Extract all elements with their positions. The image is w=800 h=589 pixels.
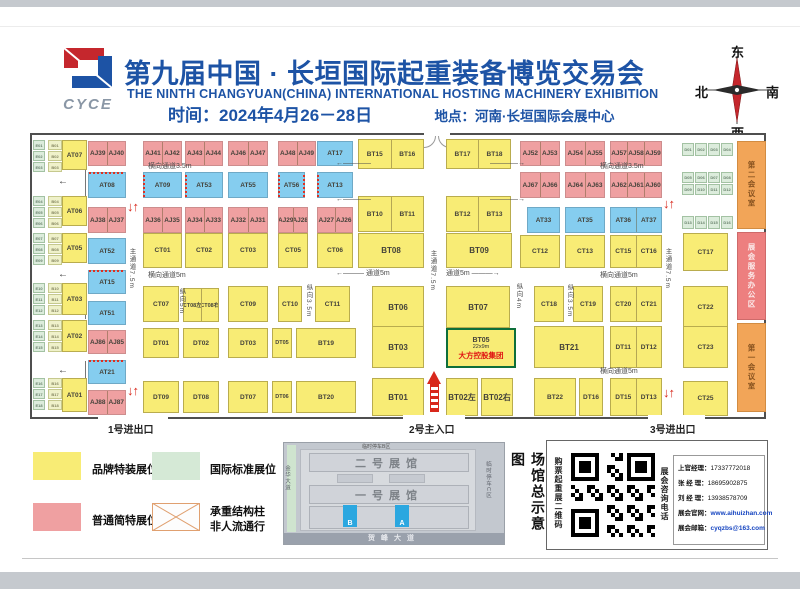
booth-cell: AT03 — [63, 284, 86, 314]
booth-cell: AT36 — [611, 208, 636, 232]
date-venue-line: 时间：2024年4月26－28日 地点：河南·长垣国际会展中心 — [168, 101, 688, 126]
contact-row: 刘 经 理：13938578709 — [678, 491, 761, 506]
cyce-logo: CYCE — [56, 44, 120, 116]
contact-box: 上官经理：17337772018张 经 理：18695902875刘 经 理：1… — [673, 455, 765, 545]
mini-booth: D15 — [708, 216, 720, 229]
booth-size-label: 22x9m — [473, 344, 490, 351]
booth-cell: CT10 — [279, 287, 301, 321]
booth-cell: AJ67 — [521, 173, 540, 197]
booth-cell: AJ59 — [644, 142, 661, 165]
link-corridor — [337, 474, 373, 483]
booth-DT03: DT03 — [228, 328, 268, 358]
booth-cell: BT11 — [391, 197, 424, 231]
booth-AT53: AT53 — [185, 172, 223, 198]
booth-cell: BT02左 — [447, 379, 477, 415]
booth-AT55: AT55 — [228, 172, 268, 198]
contact-link-value: cyqzbs@163.com — [711, 525, 765, 532]
booth-cell: BT22 — [535, 379, 575, 415]
mini-booth: E12 — [33, 305, 45, 315]
booth-cell: DT07 — [229, 382, 267, 412]
booth-cell: DT02 — [184, 329, 218, 357]
booth-BT06: BT06 — [372, 286, 424, 328]
booth-cell: AJ54 — [566, 142, 585, 165]
booth-cell: DT11 — [611, 327, 636, 367]
booth-cell: CT20 — [611, 287, 636, 321]
mini-booth: B04 — [48, 196, 62, 206]
gate-label-1: 1号进出口 — [108, 421, 154, 436]
legend-swatch-brand — [33, 452, 81, 480]
mini-booth: D16 — [721, 216, 733, 229]
booth-cell: DT15 — [611, 379, 636, 415]
booth-cell: AJ44 — [204, 142, 223, 165]
booth-cell: CT25 — [684, 382, 727, 415]
mini-booth: E07 — [33, 233, 45, 243]
booth-cell: CT15 — [611, 236, 636, 267]
two-way-arrow-icon: ↓↑ — [663, 196, 674, 211]
booth-cell: AJ61 — [627, 173, 644, 197]
legend-label-simple: 普通简特展位 — [92, 512, 158, 528]
mini-booth: D07 — [708, 172, 720, 183]
mini-booth: B10 — [48, 283, 62, 293]
booth-AT07: AT07 — [62, 140, 87, 170]
booth-cell: BT21 — [535, 327, 603, 367]
legend-label-pillar-1: 承重结构柱 — [210, 503, 265, 519]
booth-cell: CT09 — [229, 287, 267, 321]
mini-booth: B03 — [48, 162, 62, 172]
booth-cell: AJ49 — [297, 142, 316, 165]
entrance-hall-a: A — [395, 505, 409, 527]
booth-展会服务办公区: 展会服务办公区 — [737, 232, 766, 320]
special-booth-dash — [89, 360, 125, 362]
booth-CT19: CT19 — [573, 286, 603, 322]
booth-cell: AT51 — [89, 302, 125, 324]
booth-BT08: BT08 — [358, 233, 424, 268]
booth-cell: AJ32 — [229, 208, 248, 232]
booth-DT16: DT16 — [579, 378, 603, 416]
page-subtitle-english: THE NINTH CHANGYUAN(CHINA) INTERNATIONAL… — [127, 87, 658, 101]
booth-cell: CT03 — [229, 234, 267, 267]
booth-cell: AJ60 — [644, 173, 661, 197]
booth-DT08: DT08 — [183, 381, 219, 413]
booth-cell: AJ36 — [144, 208, 162, 232]
booth-DT05: DT05 — [272, 328, 292, 358]
booth-CT02: CT02 — [185, 233, 223, 268]
contact-phone-value: 13938578709 — [708, 495, 748, 502]
mini-booth: E17 — [33, 389, 45, 399]
booth-cell: CT06 — [318, 234, 352, 267]
booth-AT08: AT08 — [88, 172, 126, 198]
aisle-label: ←―――― — [336, 160, 371, 167]
booth-cell: AJ86 — [89, 331, 107, 353]
booth-AJ27: AJ27AJ26 — [317, 207, 353, 233]
booth-cell: AJ53 — [540, 142, 560, 165]
aisle-label: ←――― 通道5m — [336, 268, 390, 278]
booth-CT20: CT20CT21 — [610, 286, 662, 322]
booth-cell: AJ28 — [293, 208, 308, 232]
mini-booth: E15 — [33, 342, 45, 352]
mini-booth: E05 — [33, 207, 45, 217]
mini-booth: E10 — [33, 283, 45, 293]
booth-AJ52: AJ52AJ53 — [520, 141, 560, 166]
booth-cell: AJ35 — [162, 208, 181, 232]
booth-cell: AJ87 — [107, 391, 126, 414]
booth-AT15: AT15 — [88, 270, 126, 294]
booth-AT21: AT21 — [88, 360, 126, 384]
mini-booth: D06 — [695, 172, 707, 183]
contact-row: 展会邮箱：cyqzbs@163.com — [678, 521, 761, 536]
booth-cell: CT17 — [684, 234, 727, 270]
mini-booth: D09 — [682, 184, 694, 195]
aisle-label: 主通道7.5m — [427, 250, 437, 291]
booth-DT09: DT09 — [143, 381, 179, 413]
booth-cell: AT05 — [63, 234, 86, 262]
booth-CT22: CT22 — [683, 286, 728, 328]
mini-booth: D01 — [682, 143, 694, 156]
booth-AJ48: AJ48AJ49 — [278, 141, 316, 166]
mini-booth: B02 — [48, 151, 62, 161]
booth-cell: BT01 — [373, 379, 423, 415]
special-booth-dash — [143, 173, 145, 197]
booth-BT03: BT03 — [372, 326, 424, 368]
hall-1: 一号展馆 — [309, 485, 469, 504]
booth-BT05: BT0522x9m大方控股集团 — [446, 328, 516, 368]
booth-cell: CT08右 — [201, 289, 219, 321]
booth-cell: CT12 — [521, 236, 559, 267]
booth-cell: AJ38 — [89, 208, 107, 232]
booth-AJ64: AJ64AJ63 — [565, 172, 605, 198]
booth-cell: BT06 — [373, 287, 423, 327]
gate-gap-1 — [98, 415, 168, 419]
scan-edge-top — [0, 0, 800, 7]
gate-label-3: 3号进出口 — [650, 421, 696, 436]
booth-AT05: AT05 — [62, 233, 87, 263]
mini-booth: D02 — [695, 143, 707, 156]
mini-booth: E11 — [33, 294, 45, 304]
road-name-bottom: 贺峰大道 — [284, 533, 504, 544]
road-name-left: 金华大道 — [283, 465, 291, 491]
direction-arrow: ← — [58, 176, 68, 187]
booth-AT06: AT06 — [62, 196, 87, 226]
contact-row: 展会官网：www.aihuizhan.com — [678, 506, 761, 521]
booth-CT13: CT13 — [565, 235, 605, 268]
booth-DT07: DT07 — [228, 381, 268, 413]
booth-CT17: CT17 — [683, 233, 728, 271]
mini-booth: D08 — [721, 172, 733, 183]
booth-cell: DT13 — [636, 379, 662, 415]
booth-BT21: BT21 — [534, 326, 604, 368]
booth-cell: AJ48 — [279, 142, 297, 165]
aisle-label: 横向通道5m — [600, 270, 638, 280]
link-corridor — [389, 474, 425, 483]
booth-cell: AJ31 — [248, 208, 268, 232]
booth-AT02: AT02 — [62, 320, 87, 352]
divider — [0, 26, 800, 27]
booth-DT15: DT15DT13 — [610, 378, 662, 416]
booth-cell: AJ40 — [107, 142, 126, 165]
booth-AJ32: AJ32AJ31 — [228, 207, 268, 233]
booth-CT03: CT03 — [228, 233, 268, 268]
mini-booth: B14 — [48, 331, 62, 341]
legend-swatch-pillar-icon — [152, 503, 200, 531]
booth-AJ54: AJ54AJ55 — [565, 141, 605, 166]
booth-BT19: BT19 — [296, 328, 356, 358]
booth-第二会议室: 第二会议室 — [737, 141, 766, 229]
booth-cell: AT53 — [186, 173, 222, 197]
booth-cell: BT03 — [373, 327, 423, 367]
mini-booth: B09 — [48, 255, 62, 265]
mini-booth: E06 — [33, 218, 45, 228]
booth-cell: CT13 — [566, 236, 604, 267]
contact-label: 展会官网： — [678, 510, 711, 517]
booth-BT09: BT09 — [446, 233, 512, 268]
booth-cell: AJ33 — [204, 208, 223, 232]
booth-BT20: BT20 — [296, 381, 356, 413]
booth-cell: CT11 — [316, 287, 349, 321]
contact-row: 上官经理：17337772018 — [678, 461, 761, 476]
two-way-arrow-icon: ↓↑ — [663, 385, 674, 400]
booth-company-label: 大方控股集团 — [459, 351, 504, 360]
scan-edge-bottom — [0, 572, 800, 589]
special-booth-dash — [89, 172, 125, 174]
booth-DT02: DT02 — [183, 328, 219, 358]
contact-phone-value: 17337772018 — [711, 465, 751, 472]
booth-cell: AJ29 — [279, 208, 293, 232]
booth-cell: CT01 — [144, 234, 181, 267]
mini-booth: E03 — [33, 162, 45, 172]
mini-booth: E13 — [33, 320, 45, 330]
booth-cell: AJ62 — [611, 173, 627, 197]
main-entrance-arrow-shaft — [430, 384, 439, 412]
booth-cell: DT03 — [229, 329, 267, 357]
booth-cell: DT05 — [273, 329, 291, 357]
booth-AJ34: AJ34AJ33 — [185, 207, 223, 233]
venue-grounds: 二号展馆 一号展馆 B A — [300, 449, 476, 531]
aisle-label: ←―――― — [336, 196, 371, 203]
gate-gap-2 — [403, 415, 465, 419]
mini-booth: E14 — [33, 331, 45, 341]
booth-DT11: DT11DT12 — [610, 326, 662, 368]
mini-booth: E04 — [33, 196, 45, 206]
aisle-label: 横向通道3.5m — [148, 161, 192, 171]
mini-booth: B16 — [48, 378, 62, 388]
gate-gap-3 — [648, 415, 705, 419]
booth-cell: AT55 — [229, 173, 267, 197]
booth-CT23: CT23 — [683, 326, 728, 368]
mini-booth: B17 — [48, 389, 62, 399]
contact-link-value: www.aihuizhan.com — [711, 510, 773, 517]
booth-cell: DT16 — [580, 379, 602, 415]
booth-AT03: AT03 — [62, 283, 87, 315]
exhibition-dates: 时间：2024年4月26－28日 — [168, 106, 372, 125]
aisle-label: 横向通道5m — [600, 366, 638, 376]
mini-booth: B13 — [48, 320, 62, 330]
aisle-label: 纵向5m — [176, 288, 186, 314]
booth-cell: BT16 — [391, 140, 424, 168]
booth-cell: CT05 — [279, 234, 307, 267]
booth-BT02右: BT02右 — [481, 378, 513, 416]
mini-booth: D12 — [721, 184, 733, 195]
booth-cell: CT16 — [636, 236, 662, 267]
mini-booth: E18 — [33, 400, 45, 410]
aisle-label: 纵向3.5m — [564, 284, 574, 317]
booth-AJ62: AJ62AJ61AJ60 — [610, 172, 662, 198]
booth-cell: AT08 — [89, 173, 125, 197]
booth-CT07: CT07 — [143, 286, 179, 322]
booth-cell: AT09 — [144, 173, 181, 197]
aisle-label: 横向通道5m — [148, 270, 186, 280]
booth-cell: AJ26 — [335, 208, 353, 232]
booth-cell: AT07 — [63, 141, 86, 169]
special-booth-dash — [317, 173, 319, 197]
parking-right-label: 临时停车C区 — [484, 461, 492, 498]
booth-AJ88: AJ88AJ87 — [88, 390, 126, 415]
legend-label-standard: 国际标准展位 — [210, 461, 276, 477]
mini-booth: B18 — [48, 400, 62, 410]
aisle-label: 纵向4m — [513, 283, 523, 309]
booth-AJ67: AJ67AJ66 — [520, 172, 560, 198]
booth-cell: CT22 — [684, 287, 727, 327]
booth-AT56: AT56 — [278, 172, 305, 198]
booth-CT09: CT09 — [228, 286, 268, 322]
booth-cell: AJ39 — [89, 142, 107, 165]
booth-cell: AJ63 — [585, 173, 605, 197]
aisle-label: ――――→ — [490, 196, 525, 203]
contact-label: 刘 经 理： — [678, 495, 708, 502]
booth-cell: BT07 — [447, 287, 509, 327]
booth-AJ39: AJ39AJ40 — [88, 141, 126, 166]
aisle-label: 通道5m ―――→ — [446, 268, 500, 278]
booth-AJ38: AJ38AJ37 — [88, 207, 126, 233]
booth-cell: DT12 — [636, 327, 662, 367]
cyce-logo-icon — [56, 44, 120, 94]
booth-DT06: DT06 — [272, 381, 292, 413]
special-booth-dash — [278, 173, 280, 197]
booth-cell: AT13 — [318, 173, 352, 197]
booth-BT22: BT22 — [534, 378, 576, 416]
mini-booth: E02 — [33, 151, 45, 161]
booth-cell: BT09 — [447, 234, 511, 267]
booth-cell: CT23 — [684, 327, 727, 367]
mini-booth: B08 — [48, 244, 62, 254]
booth-DT01: DT01 — [143, 328, 179, 358]
booth-AT09: AT09 — [143, 172, 182, 198]
booth-cell: AJ64 — [566, 173, 585, 197]
booth-AT52: AT52 — [88, 238, 126, 264]
booth-cell: AJ66 — [540, 173, 560, 197]
booth-cell: AT01 — [63, 379, 86, 411]
booth-CT12: CT12 — [520, 235, 560, 268]
logo-text: CYCE — [56, 96, 120, 113]
booth-cell: AJ85 — [107, 331, 126, 353]
booth-CT01: CT01 — [143, 233, 182, 268]
venue-overview-map: 金华大道 临时停车B区 二号展馆 一号展馆 B A 临时停车C区 贺峰大道 — [283, 442, 505, 545]
contact-label: 张 经 理： — [678, 480, 708, 487]
two-way-arrow-icon: ↓↑ — [127, 383, 138, 398]
booth-AT35: AT35 — [565, 207, 605, 233]
direction-arrow: ← — [58, 365, 68, 376]
booth-cell: DT06 — [273, 382, 291, 412]
booth-cell: AT02 — [63, 321, 86, 351]
floor-plan: AT07AT06AT05AT03AT02AT01AJ39AJ40AT08AJ38… — [30, 133, 766, 419]
mini-booth: B11 — [48, 294, 62, 304]
booth-BT01: BT01 — [372, 378, 424, 416]
mini-booth: D05 — [682, 172, 694, 183]
booth-第一会议室: 第一会议室 — [737, 323, 766, 412]
booth-cell: AT35 — [566, 208, 604, 232]
booth-AT13: AT13 — [317, 172, 353, 198]
booth-cell: AJ37 — [107, 208, 126, 232]
booth-BT07: BT07 — [446, 286, 510, 328]
mini-booth: E09 — [33, 255, 45, 265]
booth-cell: DT08 — [184, 382, 218, 412]
booth-cell: BT19 — [297, 329, 355, 357]
aisle-label: 主通道7.5m — [662, 248, 672, 289]
compass-rose: 东 北 南 西 — [695, 42, 779, 138]
booth-cell: CT08左 — [184, 289, 201, 321]
booth-cell: AT33 — [528, 208, 559, 232]
booth-CT25: CT25 — [683, 381, 728, 416]
qr-caption: 购票起重展二维码 — [553, 457, 564, 529]
contact-row: 张 经 理：18695902875 — [678, 476, 761, 491]
booth-CT10: CT10 — [278, 286, 302, 322]
contact-label: 展会邮箱： — [678, 525, 711, 532]
booth-cell: AT06 — [63, 197, 86, 225]
two-way-arrow-icon: ↓↑ — [127, 199, 138, 214]
booth-CT05: CT05 — [278, 233, 308, 268]
mini-booth: D04 — [721, 143, 733, 156]
booth-cell: CT18 — [535, 287, 563, 321]
aisle-label: 主通道7.5m — [126, 248, 136, 289]
mini-booth: E01 — [33, 140, 45, 150]
hall-2: 二号展馆 — [309, 453, 469, 472]
aisle-label: 纵向3.5m — [303, 284, 313, 317]
mini-booth: D14 — [695, 216, 707, 229]
booth-cell: AJ34 — [186, 208, 204, 232]
legend-label-brand: 品牌特装展位 — [92, 461, 158, 477]
phone-caption: 展会咨询电话 — [659, 467, 670, 521]
contact-panel: 购票起重展二维码 展会咨询电话 上官经理：17337772018张 经 理：18… — [546, 440, 768, 550]
booth-cell: BT17 — [447, 140, 478, 168]
booth-cell: AJ47 — [248, 142, 268, 165]
compass-needle-icon — [697, 54, 777, 126]
forecourt — [309, 506, 469, 529]
booth-cell: 展会服务办公区 — [738, 233, 765, 319]
booth-cell: AT37 — [636, 208, 662, 232]
mini-booth: D10 — [695, 184, 707, 195]
direction-arrow: ← — [58, 269, 68, 280]
mini-booth: D13 — [682, 216, 694, 229]
special-booth-dash — [89, 270, 125, 272]
booth-cell: CT19 — [574, 287, 602, 321]
entrance-hall-b: B — [343, 505, 357, 527]
booth-CT06: CT06 — [317, 233, 353, 268]
mini-booth: B06 — [48, 218, 62, 228]
booth-AJ36: AJ36AJ35 — [143, 207, 182, 233]
legend-label-pillar-2: 非人流通行 — [210, 518, 265, 534]
booth-AT36: AT36AT37 — [610, 207, 662, 233]
booth-cell: CT02 — [186, 234, 222, 267]
booth-cell: AJ46 — [229, 142, 248, 165]
booth-AJ29: AJ29AJ28 — [278, 207, 308, 233]
exhibition-venue: 地点：河南·长垣国际会展中心 — [435, 109, 615, 124]
booth-cell: AT15 — [89, 271, 125, 293]
booth-CT15: CT15CT16 — [610, 235, 662, 268]
booth-cell: AJ27 — [318, 208, 335, 232]
mini-booth: B05 — [48, 207, 62, 217]
gate-label-2: 2号主入口 — [409, 421, 455, 436]
main-entrance-arrow-icon — [427, 371, 441, 384]
booth-cell: 第二会议室 — [738, 142, 765, 228]
